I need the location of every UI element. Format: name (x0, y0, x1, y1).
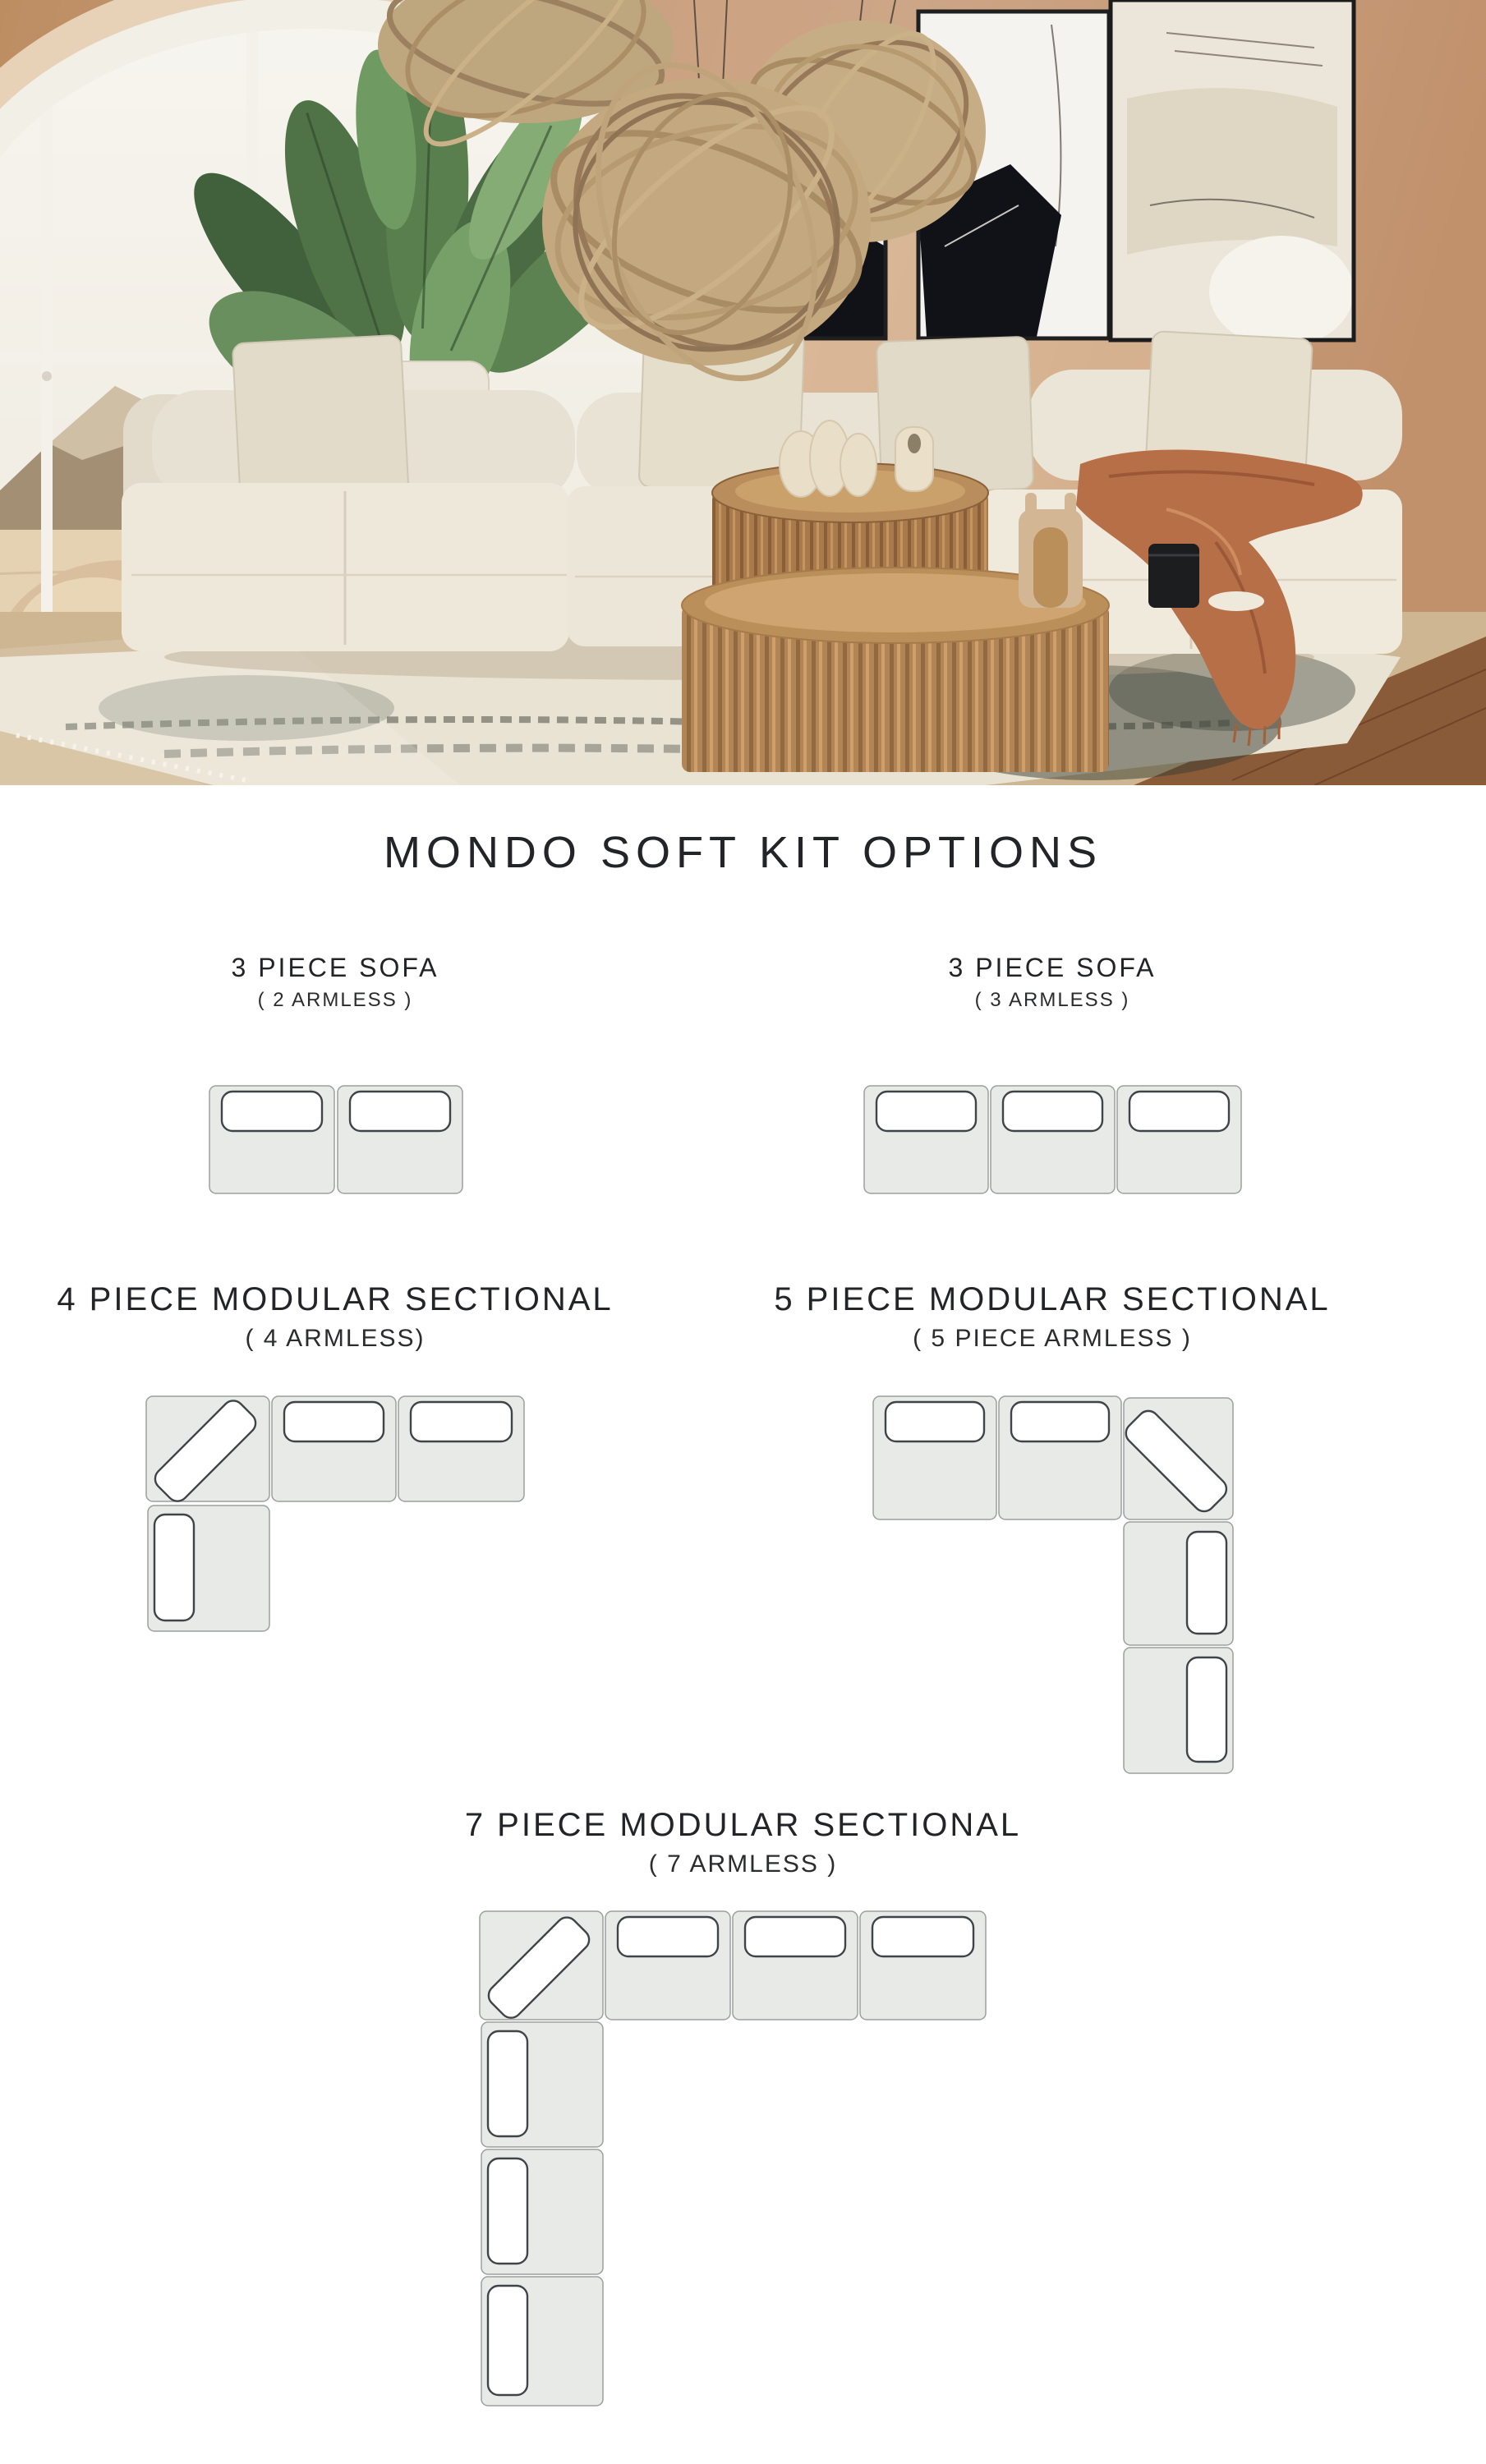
seat-cushion (1187, 1657, 1226, 1762)
option-variant: ( 4 ARMLESS) (23, 1324, 647, 1354)
diagram-7-piece-sectional (480, 1911, 986, 2406)
hero-photo (0, 0, 1486, 785)
option-name: 5 PIECE MODULAR SECTIONAL (740, 1280, 1364, 1319)
seat-cushion (876, 1092, 976, 1131)
diagram-4-piece-sectional (146, 1396, 524, 1631)
option-name: 7 PIECE MODULAR SECTIONAL (0, 1805, 1486, 1845)
seat-cushion (886, 1402, 984, 1441)
seat-cushion (488, 2158, 527, 2264)
option-variant: ( 5 PIECE ARMLESS ) (740, 1324, 1364, 1354)
diagram-5-piece-sectional (873, 1396, 1233, 1773)
option-variant: ( 3 ARMLESS ) (740, 988, 1364, 1013)
seat-cushion (745, 1917, 845, 1956)
option-5-piece-sectional: 5 PIECE MODULAR SECTIONAL ( 5 PIECE ARML… (740, 1280, 1364, 1354)
seat-cushion (488, 2031, 527, 2136)
option-name: 3 PIECE SOFA (740, 951, 1364, 984)
option-name: 4 PIECE MODULAR SECTIONAL (23, 1280, 647, 1319)
seat-cushion (488, 2286, 527, 2395)
seat-cushion (1129, 1092, 1229, 1131)
seat-cushion (1011, 1402, 1109, 1441)
diagram-2-armless-sofa (209, 1086, 462, 1194)
seat-cushion (1187, 1532, 1226, 1634)
option-4-piece-sectional: 4 PIECE MODULAR SECTIONAL ( 4 ARMLESS) (23, 1280, 647, 1354)
seat-cushion (222, 1092, 322, 1131)
artwork-right (1111, 0, 1354, 347)
product-options-page: MONDO SOFT KIT OPTIONS 3 PIECE SOFA ( 2 … (0, 0, 1486, 2464)
option-3-piece-sofa-3-armless: 3 PIECE SOFA ( 3 ARMLESS ) (740, 951, 1364, 1013)
seat-cushion (154, 1515, 194, 1620)
seat-cushion (411, 1402, 512, 1441)
option-name: 3 PIECE SOFA (23, 951, 647, 984)
option-7-piece-sectional: 7 PIECE MODULAR SECTIONAL ( 7 ARMLESS ) (0, 1805, 1486, 1879)
seat-cushion (350, 1092, 450, 1131)
option-3-piece-sofa-2-armless: 3 PIECE SOFA ( 2 ARMLESS ) (23, 951, 647, 1013)
seat-cushion (618, 1917, 718, 1956)
seat-cushion (284, 1402, 384, 1441)
seat-cushion (1003, 1092, 1102, 1131)
option-variant: ( 7 ARMLESS ) (0, 1850, 1486, 1879)
page-title: MONDO SOFT KIT OPTIONS (0, 828, 1486, 877)
diagram-3-armless-sofa (864, 1086, 1241, 1194)
option-variant: ( 2 ARMLESS ) (23, 988, 647, 1013)
seat-cushion (872, 1917, 973, 1956)
